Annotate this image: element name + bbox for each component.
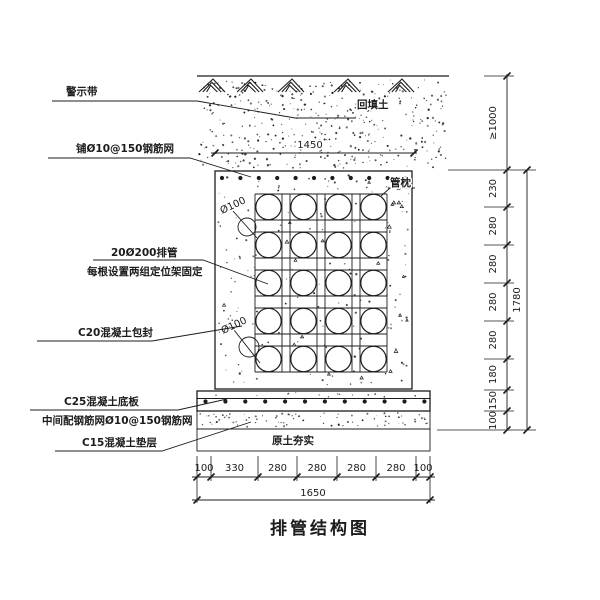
right-seg-5: 180: [488, 365, 499, 384]
warning-tape-label: 警示带: [65, 85, 98, 98]
bottom-total-value: 1650: [300, 488, 325, 499]
top-mesh-label: 铺Ø10@150钢筋网: [76, 142, 174, 155]
right-dimension-chain: ≥1000 230 280 280 280 280 180 150 100 17…: [437, 73, 536, 434]
right-seg-6: 150: [488, 391, 499, 410]
c15-cushion-layer: [197, 411, 430, 429]
top-mesh-callout: 铺Ø10@150钢筋网: [48, 142, 251, 177]
right-seg-1: 280: [488, 216, 499, 235]
bottom-seg-5: 280: [386, 463, 405, 474]
right-seg-4: 280: [488, 330, 499, 349]
pipes-label-line2: 每根设置两组定位架固定: [87, 265, 203, 278]
cushion-label: C15混凝土垫层: [82, 436, 157, 449]
right-total-value: 1780: [512, 287, 523, 312]
duct-pipes: [256, 194, 386, 371]
pipe-dia-lower-label: Ø100: [219, 314, 249, 336]
drawing-sheet: 回填土 1450 管枕 Ø100 Ø100 警示带 铺Ø10@150钢筋网 20…: [0, 0, 600, 600]
bottom-seg-3: 280: [307, 463, 326, 474]
drawing-title: 排管结构图: [270, 518, 370, 539]
bottom-seg-0: 100: [194, 463, 213, 474]
right-seg-0: 230: [488, 179, 499, 198]
slab-mesh-label: 中间配钢筋网Ø10@150钢筋网: [42, 414, 192, 427]
encapsulation-label: C20混凝土包封: [78, 326, 153, 339]
tamped-ground-hatch-icon: [199, 79, 414, 92]
bottom-seg-2: 280: [268, 463, 287, 474]
pipe-dia-callout-upper: Ø100: [218, 194, 257, 238]
pipe-pillow-label: 管枕: [390, 176, 411, 189]
bottom-seg-4: 280: [347, 463, 366, 474]
slab-rebar-dots: [203, 399, 426, 403]
backfill-soil-texture: [198, 80, 447, 169]
bottom-seg-6: 100: [413, 463, 432, 474]
compacted-soil-label: 原土夯实: [272, 434, 314, 447]
encapsulation-callout: C20混凝土包封: [37, 326, 242, 341]
right-seg-7: 100: [488, 411, 499, 430]
base-slab-label: C25混凝土底板: [64, 395, 139, 408]
bottom-dimension-chain: 100 330 280 280 280 280 100 1650: [192, 456, 435, 504]
backfill-label: 回填土: [357, 98, 389, 111]
cover-depth-value: ≥1000: [488, 106, 499, 140]
pipe-structure-diagram: 回填土 1450 管枕 Ø100 Ø100 警示带 铺Ø10@150钢筋网 20…: [0, 0, 600, 600]
right-seg-2: 280: [488, 254, 499, 273]
c25-base-slab: [197, 391, 430, 411]
bottom-seg-1: 330: [225, 463, 244, 474]
pipes-label-line1: 20Ø200排管: [111, 246, 178, 259]
cushion-texture: [199, 392, 427, 427]
pipes-callout: 20Ø200排管 每根设置两组定位架固定: [87, 246, 268, 284]
right-seg-3: 280: [488, 292, 499, 311]
top-width-value: 1450: [297, 140, 322, 151]
pipe-dia-upper-label: Ø100: [218, 194, 248, 216]
